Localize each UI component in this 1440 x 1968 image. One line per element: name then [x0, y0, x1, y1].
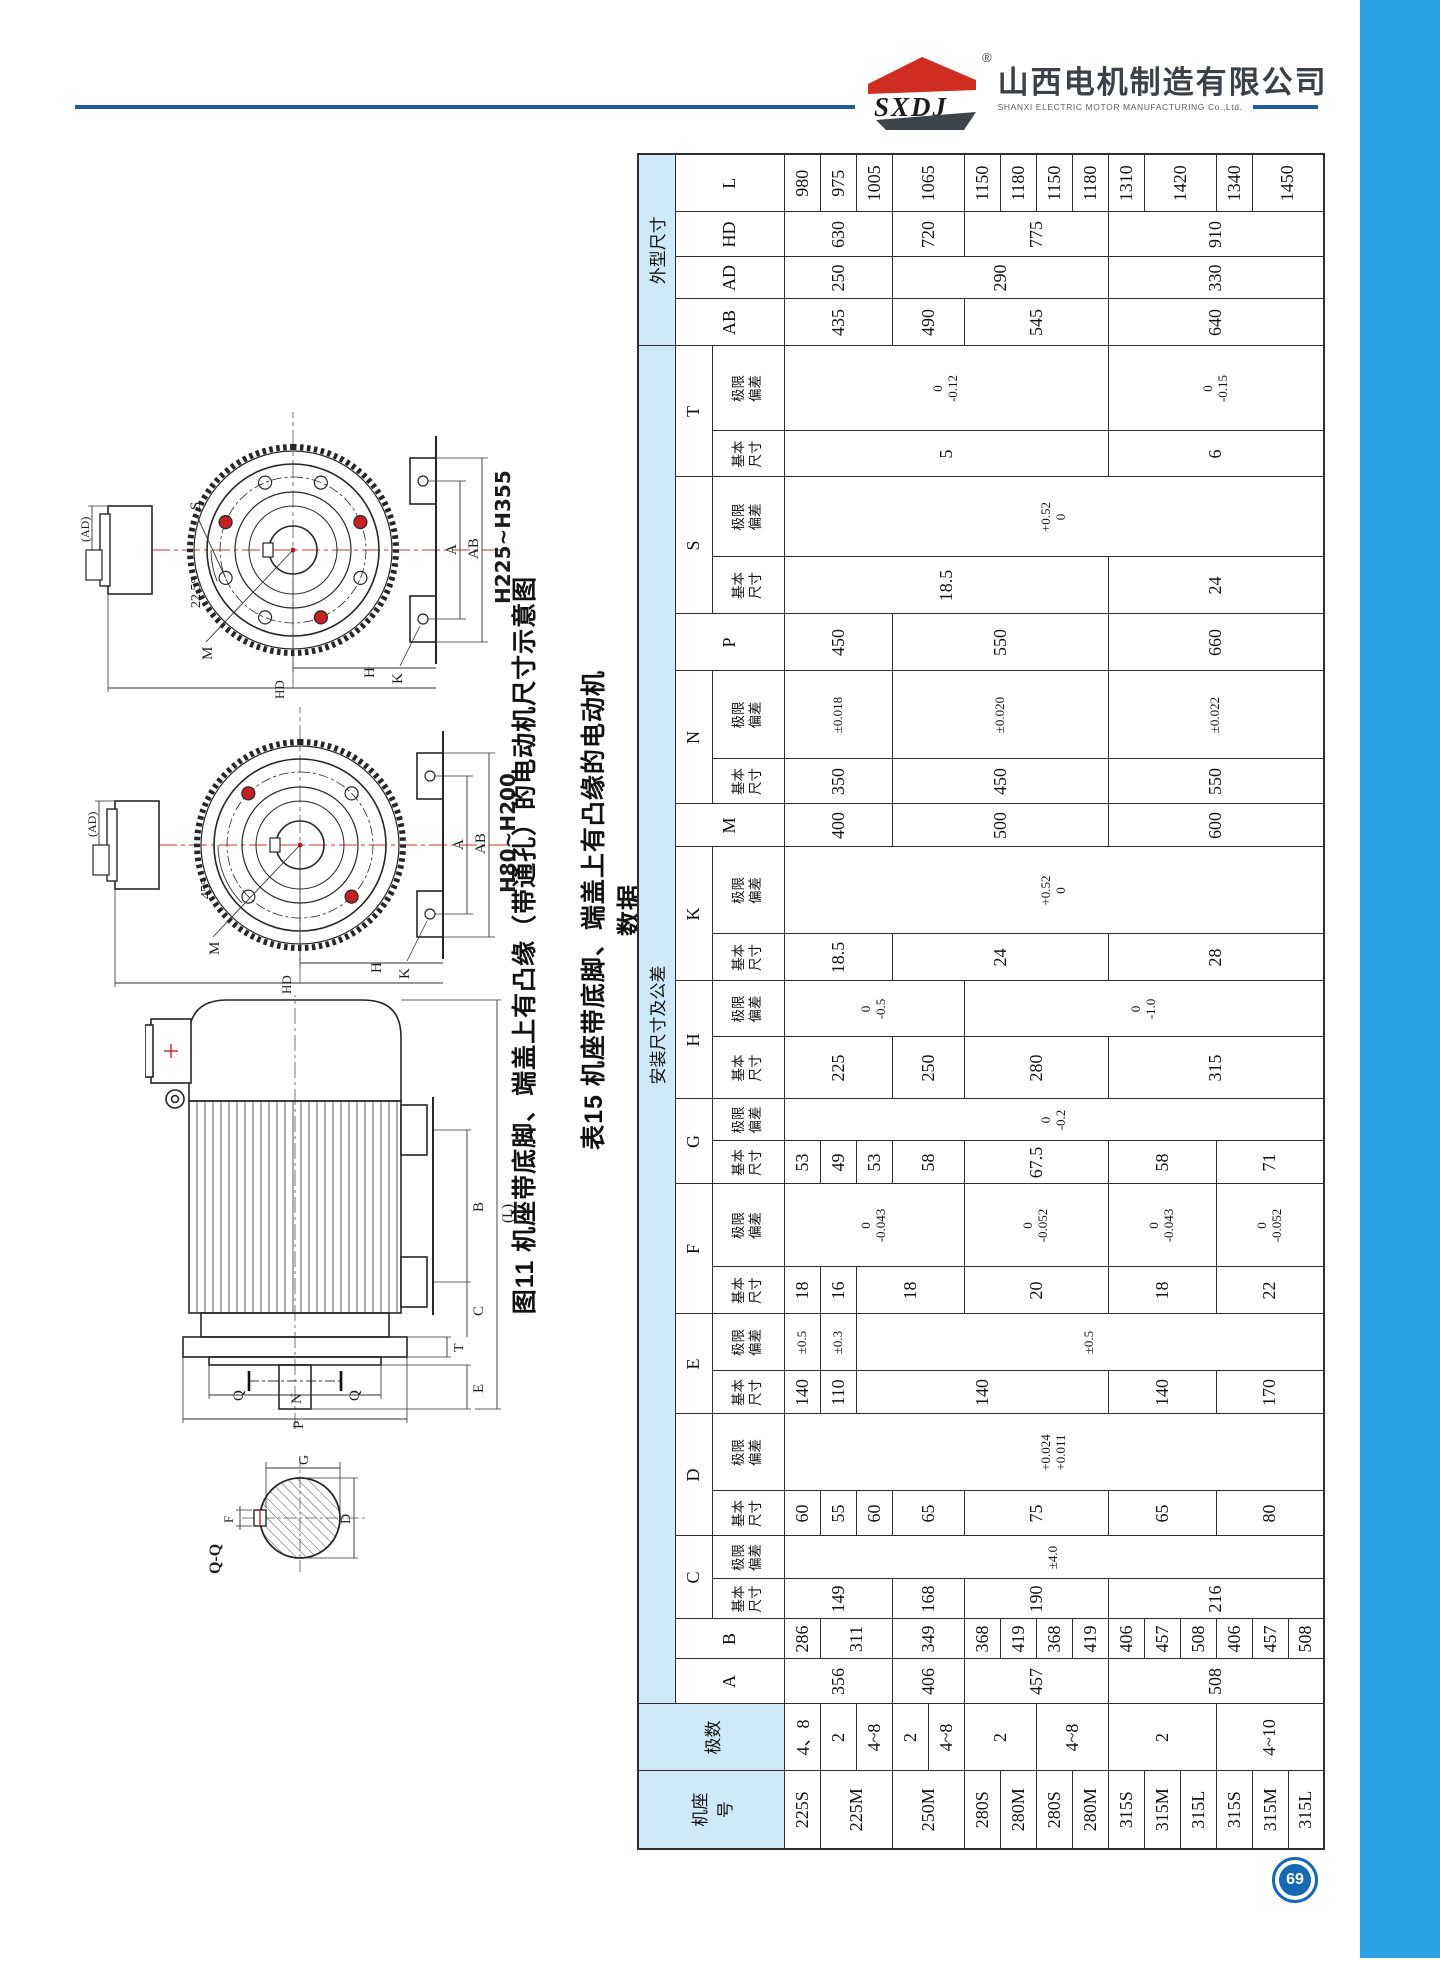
dim-hd-label: HD — [272, 680, 287, 699]
data-cell: 290 — [892, 257, 1108, 299]
data-cell: ±0.020 — [892, 671, 1108, 759]
company-name-cn: 山西电机制造有限公司 — [998, 66, 1328, 100]
section-title: Q-Q — [207, 1544, 224, 1574]
flange-hole — [354, 571, 367, 584]
header-cell: 极限 偏差 — [712, 1099, 784, 1141]
figure-caption: 图11 机座带底脚、端盖上有凸缘（带通孔）的电动机尺寸示意图 — [505, 575, 541, 1315]
data-cell: 356 — [784, 1659, 892, 1704]
data-cell: 0 -0.12 — [784, 346, 1108, 431]
header-cell: F — [675, 1184, 712, 1314]
dim-ab-label: AB — [466, 538, 482, 559]
data-cell: 315L — [1180, 1771, 1216, 1849]
dim-s-label: S — [188, 502, 204, 510]
data-cell: 28 — [1108, 934, 1324, 981]
header-cell: 极限 偏差 — [712, 477, 784, 557]
data-cell: 2 — [1108, 1704, 1216, 1771]
data-cell: 1450 — [1252, 154, 1324, 212]
header-cell: HD — [675, 212, 784, 257]
flange-hole — [354, 516, 367, 529]
header-cell: 极限 偏差 — [712, 1536, 784, 1579]
shaft-section-circle — [260, 1478, 340, 1558]
logo-roof-shape — [868, 57, 976, 94]
motor-dimensions-table: 机座 号极数安装尺寸及公差外型尺寸ABCDEFGHKMNPSTABADHDL基本… — [637, 153, 1325, 1850]
data-cell: 980 — [784, 154, 820, 212]
dim-m-label: M — [200, 647, 216, 660]
data-cell: 419 — [1000, 1619, 1036, 1659]
data-cell: 225 — [784, 1037, 892, 1099]
data-cell: 2 — [820, 1704, 856, 1771]
terminal-box — [115, 801, 159, 889]
data-cell: 140 — [1108, 1371, 1216, 1414]
data-cell: 53 — [856, 1141, 892, 1184]
dim-h-label: H — [362, 667, 378, 678]
dim-c-label: C — [471, 1306, 487, 1316]
dim-d-label: D — [339, 1514, 354, 1524]
data-cell: 1180 — [1072, 154, 1108, 212]
data-cell: 0 -0.043 — [1108, 1184, 1216, 1267]
data-cell: 60 — [784, 1491, 820, 1536]
header-cell: D — [675, 1414, 712, 1536]
data-cell: 2 — [892, 1704, 928, 1771]
header-cell: K — [675, 847, 712, 981]
table-wrapper: 机座 号极数安装尺寸及公差外型尺寸ABCDEFGHKMNPSTABADHDL基本… — [637, 153, 1325, 1850]
rear-foot — [401, 1105, 427, 1155]
data-cell: 508 — [1288, 1619, 1324, 1659]
header-cell: 基本 尺寸 — [712, 934, 784, 981]
flange-hole — [345, 890, 358, 903]
data-cell: 5 — [784, 431, 1108, 477]
header-cell: 极限 偏差 — [712, 981, 784, 1037]
header-cell: 基本 尺寸 — [712, 1141, 784, 1184]
data-cell: 0 -0.052 — [964, 1184, 1108, 1267]
sxdj-logo-icon: SXDJ — [862, 52, 980, 132]
flange-hole — [242, 787, 255, 800]
dim-ad-label: (AD) — [78, 517, 92, 542]
flange-hole — [314, 611, 327, 624]
data-cell: 225M — [820, 1771, 892, 1849]
registered-trademark-icon: ® — [982, 50, 992, 65]
data-cell: 545 — [964, 299, 1108, 346]
data-cell: 450 — [784, 614, 892, 671]
data-cell: 910 — [1108, 212, 1324, 257]
data-cell: 4~8 — [928, 1704, 964, 1771]
data-cell: 315L — [1288, 1771, 1324, 1849]
header-cell: 基本 尺寸 — [712, 1491, 784, 1536]
data-cell: 457 — [964, 1659, 1108, 1704]
data-cell: 1150 — [1036, 154, 1072, 212]
data-cell: 110 — [820, 1371, 856, 1414]
flange-hole — [259, 476, 272, 489]
header-cell: AB — [675, 299, 784, 346]
header-cell: G — [675, 1099, 712, 1184]
data-cell: 775 — [964, 212, 1108, 257]
data-cell: 4、8 — [784, 1704, 820, 1771]
data-cell: 450 — [892, 759, 1108, 804]
header-cell: E — [675, 1314, 712, 1414]
data-cell: 315S — [1216, 1771, 1252, 1849]
terminal-box — [108, 506, 152, 594]
data-cell: 640 — [1108, 299, 1324, 346]
rotated-content: F G D Q-Q — [60, 140, 1325, 1860]
data-cell: 170 — [1216, 1371, 1324, 1414]
header-cell: 极限 偏差 — [712, 1314, 784, 1371]
dim-n-label: N — [289, 1393, 305, 1404]
data-cell: 508 — [1180, 1619, 1216, 1659]
data-cell: 58 — [892, 1141, 964, 1184]
data-cell: 18 — [1108, 1267, 1216, 1314]
data-cell: 1150 — [964, 154, 1000, 212]
header-cell: M — [675, 804, 784, 847]
section-mark-q-top: Q — [231, 1390, 247, 1401]
data-cell: 60 — [856, 1491, 892, 1536]
data-cell: 0 -1.0 — [964, 981, 1324, 1037]
header-cell: AD — [675, 257, 784, 299]
data-cell: 53 — [784, 1141, 820, 1184]
table-caption: 表15 机座带底脚、端盖上有凸缘的电动机数据 — [574, 660, 646, 1160]
shaft-section-qq-diagram: F G D Q-Q — [200, 1450, 370, 1580]
data-cell: 1180 — [1000, 154, 1036, 212]
data-cell: 65 — [892, 1491, 964, 1536]
header-cell: 机座 号 — [638, 1771, 784, 1849]
section-mark-q-bottom: Q — [347, 1390, 363, 1401]
data-cell: 280 — [964, 1037, 1108, 1099]
data-cell: 500 — [892, 804, 1108, 847]
blue-edge-bar — [1360, 0, 1440, 1958]
dim-hd-label: HD — [279, 975, 294, 994]
dim-g-label: G — [297, 1455, 312, 1465]
data-cell: 406 — [1108, 1619, 1144, 1659]
data-cell: 330 — [1108, 257, 1324, 299]
data-cell: 368 — [964, 1619, 1000, 1659]
data-cell: 6 — [1108, 431, 1324, 477]
flange-hole — [259, 611, 272, 624]
header-cell: L — [675, 154, 784, 212]
terminal-box-lid — [145, 1025, 153, 1077]
data-cell: ±0.5 — [784, 1314, 820, 1371]
header-cell: 外型尺寸 — [638, 154, 675, 346]
data-cell: 1005 — [856, 154, 892, 212]
dim-k-label: K — [390, 673, 406, 684]
flange-hole — [219, 516, 232, 529]
data-cell: 419 — [1072, 1619, 1108, 1659]
data-cell: 457 — [1144, 1619, 1180, 1659]
data-cell: 435 — [784, 299, 892, 346]
data-cell: 0 -0.052 — [1216, 1184, 1324, 1267]
data-cell: 975 — [820, 154, 856, 212]
data-cell: 550 — [892, 614, 1108, 671]
data-cell: 250 — [892, 1037, 964, 1099]
data-cell: 22 — [1216, 1267, 1324, 1314]
data-cell: 71 — [1216, 1141, 1324, 1184]
header-cell: 极限 偏差 — [712, 847, 784, 934]
header-cell: B — [675, 1619, 784, 1659]
data-cell: 4~8 — [1036, 1704, 1108, 1771]
data-cell: 508 — [1108, 1659, 1324, 1704]
data-cell: 280S — [964, 1771, 1000, 1849]
data-cell: 216 — [1108, 1579, 1324, 1619]
catalog-page: SXDJ ® 山西电机制造有限公司 SHANXI ELECTRIC MOTOR … — [0, 0, 1440, 1968]
data-cell: 349 — [892, 1619, 964, 1659]
data-cell: 660 — [1108, 614, 1324, 671]
data-cell: 490 — [892, 299, 964, 346]
data-cell: 280M — [1072, 1771, 1108, 1849]
data-cell: 406 — [1216, 1619, 1252, 1659]
data-cell: 67.5 — [964, 1141, 1108, 1184]
data-cell: 20 — [964, 1267, 1108, 1314]
dim-t-label: T — [452, 1343, 467, 1352]
dim-b-label: B — [471, 1202, 487, 1212]
data-cell: 18 — [856, 1267, 964, 1314]
dim-ab-label: AB — [473, 833, 489, 854]
data-cell: 0 -0.043 — [784, 1184, 964, 1267]
keyway-slot — [263, 543, 273, 557]
data-cell: 400 — [784, 804, 892, 847]
data-cell: 58 — [1108, 1141, 1216, 1184]
page-number-badge: 69 — [1272, 1857, 1318, 1903]
data-cell: +0.52 0 — [784, 477, 1324, 557]
dim-h-label: H — [369, 962, 385, 973]
header-cell: 基本 尺寸 — [712, 557, 784, 614]
data-cell: 600 — [1108, 804, 1324, 847]
dim-m-label: M — [207, 942, 223, 955]
header-cell: 基本 尺寸 — [712, 1579, 784, 1619]
data-cell: 140 — [856, 1371, 1108, 1414]
data-cell: 630 — [784, 212, 892, 257]
header-cell: 基本 尺寸 — [712, 1371, 784, 1414]
data-cell: 16 — [820, 1267, 856, 1314]
data-cell: 315M — [1252, 1771, 1288, 1849]
data-cell: 315M — [1144, 1771, 1180, 1849]
data-cell: 280S — [1036, 1771, 1072, 1849]
data-cell: ±4.0 — [784, 1536, 1324, 1579]
data-cell: 4~10 — [1216, 1704, 1324, 1771]
header-cell: 极限 偏差 — [712, 671, 784, 759]
end-view-h225-h355-diagram: 22.5° M S (AD) K H HD A AB — [78, 400, 518, 700]
header-cell: S — [675, 477, 712, 614]
data-cell: 406 — [892, 1659, 964, 1704]
data-cell: 140 — [784, 1371, 820, 1414]
data-cell: ±0.018 — [784, 671, 892, 759]
header-cell: 极限 偏差 — [712, 346, 784, 431]
data-cell: 720 — [892, 212, 964, 257]
dim-f-label: F — [221, 1516, 236, 1523]
data-cell: 1420 — [1144, 154, 1216, 212]
hole-angle-label: 45° — [199, 879, 214, 899]
data-cell: 75 — [964, 1491, 1108, 1536]
company-logo: SXDJ ® 山西电机制造有限公司 SHANXI ELECTRIC MOTOR … — [862, 52, 1328, 132]
data-cell: 0 -0.15 — [1108, 346, 1324, 431]
data-cell: +0.52 0 — [784, 847, 1324, 934]
header-rule-left — [75, 105, 855, 109]
data-cell: 18.5 — [784, 557, 1108, 614]
data-cell: 315 — [1108, 1037, 1324, 1099]
data-cell: 1340 — [1216, 154, 1252, 212]
header-cell: 极限 偏差 — [712, 1414, 784, 1491]
data-cell: 24 — [1108, 557, 1324, 614]
header-cell: 极数 — [638, 1704, 784, 1771]
header-cell: T — [675, 346, 712, 477]
motor-side-view-diagram: Q Q P N T E C — [145, 990, 515, 1435]
header-cell: 基本 尺寸 — [712, 1037, 784, 1099]
data-cell: 368 — [1036, 1619, 1072, 1659]
hole-angle-label: 22.5° — [189, 578, 204, 608]
data-cell: ±0.5 — [856, 1314, 1324, 1371]
data-cell: 0 -0.5 — [784, 981, 964, 1037]
data-cell: 2 — [964, 1704, 1036, 1771]
data-cell: 1310 — [1108, 154, 1144, 212]
data-cell: 80 — [1216, 1491, 1324, 1536]
data-cell: ±0.3 — [820, 1314, 856, 1371]
data-cell: 149 — [784, 1579, 892, 1619]
data-cell: 24 — [892, 934, 1108, 981]
data-cell: ±0.022 — [1108, 671, 1324, 759]
dim-e-label: E — [471, 1384, 487, 1393]
data-cell: 1065 — [892, 154, 964, 212]
data-cell: +0.024 +0.011 — [784, 1414, 1324, 1491]
dim-a-label: A — [451, 839, 467, 850]
data-cell: 311 — [820, 1619, 892, 1659]
data-cell: 4~8 — [856, 1704, 892, 1771]
data-cell: 18.5 — [784, 934, 892, 981]
lifting-eyebolt — [166, 1090, 184, 1108]
keyway-slot — [270, 838, 280, 852]
company-name-en: SHANXI ELECTRIC MOTOR MANUFACTURING Co.,… — [998, 102, 1328, 112]
data-cell: 250M — [892, 1771, 964, 1849]
front-foot — [401, 1257, 427, 1307]
data-cell: 250 — [784, 257, 892, 299]
header-cell: H — [675, 981, 712, 1099]
header-cell: P — [675, 614, 784, 671]
header-cell: 基本 尺寸 — [712, 759, 784, 804]
data-cell: 286 — [784, 1619, 820, 1659]
data-cell: 18 — [784, 1267, 820, 1314]
data-cell: 315S — [1108, 1771, 1144, 1849]
header-cell: 基本 尺寸 — [712, 1267, 784, 1314]
data-cell: 168 — [892, 1579, 964, 1619]
data-cell: 190 — [964, 1579, 1108, 1619]
end-view-h80-h200-diagram: 45° M (AD) K H HD A AB H80~H200 — [85, 695, 525, 995]
header-cell: A — [675, 1659, 784, 1704]
dim-a-label: A — [444, 544, 460, 555]
data-cell: 457 — [1252, 1619, 1288, 1659]
dim-ad-label: (AD) — [85, 812, 99, 837]
dim-p-label: P — [291, 1421, 307, 1429]
finned-frame — [189, 1101, 401, 1313]
dim-k-label: K — [397, 968, 413, 979]
header-cell: C — [675, 1536, 712, 1619]
data-cell: 49 — [820, 1141, 856, 1184]
data-cell: 65 — [1108, 1491, 1216, 1536]
data-cell: 0 -0.2 — [784, 1099, 1324, 1141]
data-cell: 225S — [784, 1771, 820, 1849]
page-number: 69 — [1279, 1864, 1311, 1896]
data-cell: 55 — [820, 1491, 856, 1536]
header-cell: 安装尺寸及公差 — [638, 346, 675, 1704]
header-cell: 基本 尺寸 — [712, 431, 784, 477]
data-cell: 350 — [784, 759, 892, 804]
flange-hole — [219, 571, 232, 584]
data-cell: 280M — [1000, 1771, 1036, 1849]
header-cell: 极限 偏差 — [712, 1184, 784, 1267]
header-cell: N — [675, 671, 712, 804]
data-cell: 550 — [1108, 759, 1324, 804]
